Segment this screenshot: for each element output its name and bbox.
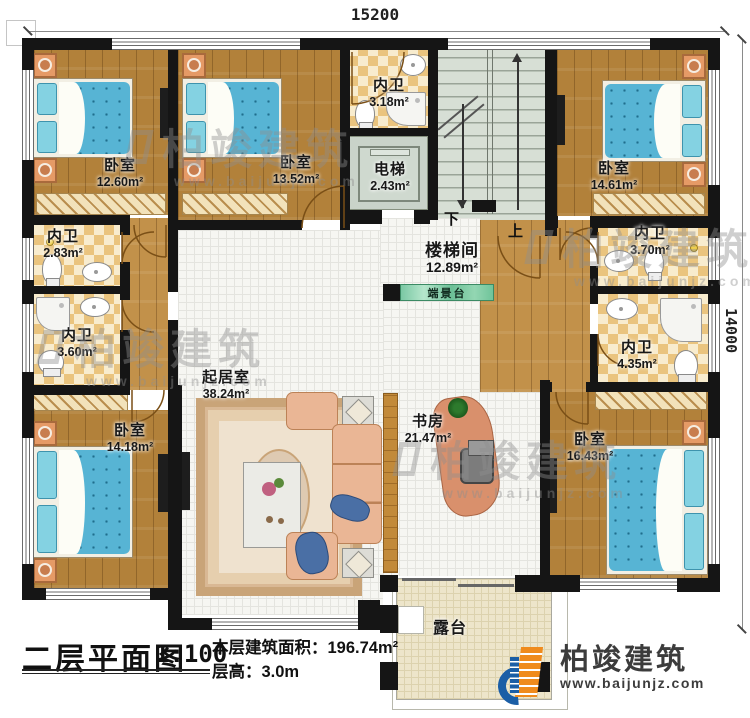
wall <box>348 128 430 136</box>
room-label-study: 书房21.47m² <box>383 414 473 445</box>
room-label-bath-r2: 内卫4.35m² <box>592 340 682 371</box>
wall <box>472 200 496 212</box>
stair-up-label: 上 <box>508 220 523 241</box>
wall <box>708 38 720 70</box>
wall <box>540 380 550 588</box>
company-name: 柏竣建筑 <box>560 645 705 675</box>
view-platform-label: 端景台 <box>428 285 467 301</box>
stair-rail <box>487 50 493 214</box>
tv-icon <box>550 458 557 513</box>
wall <box>380 605 398 633</box>
wall <box>414 210 430 224</box>
wall <box>22 215 130 225</box>
tv-icon <box>557 95 565 145</box>
wall <box>545 38 557 236</box>
company-logo: 柏竣建筑 www.baijunjz.com <box>498 645 705 709</box>
wall <box>586 382 708 392</box>
nightstand <box>33 53 57 78</box>
wall <box>708 372 720 438</box>
room-label-elevator: 电梯2.43m² <box>345 162 435 193</box>
floor-height-text: 层高：3.0m <box>212 658 299 682</box>
title-underline <box>22 673 210 674</box>
wall <box>380 575 398 592</box>
wall <box>22 38 34 70</box>
nightstand <box>182 158 206 183</box>
nightstand <box>682 420 706 445</box>
title-underline <box>22 669 210 671</box>
stair-arrow-up <box>517 62 519 210</box>
window <box>112 38 300 50</box>
sliding-door-icon <box>402 578 456 581</box>
window <box>708 438 720 564</box>
room-label-bedroom-bl: 卧室14.18m² <box>80 423 180 454</box>
room-label-bath-r1: 内卫3.70m² <box>605 226 695 257</box>
company-url: www.baijunjz.com <box>560 675 705 691</box>
decor-dot <box>266 516 273 523</box>
flower-decor <box>274 478 284 488</box>
tv-icon <box>160 88 168 138</box>
dimension-top: 15200 <box>330 5 420 24</box>
wall <box>300 38 448 50</box>
room-label-terrace: 露台 <box>400 620 500 638</box>
stair-down-label: 下 <box>444 208 459 229</box>
wardrobe <box>32 393 128 411</box>
building-area-text: 本层建筑面积：196.74m² <box>212 634 398 658</box>
arrowhead-icon <box>512 53 522 62</box>
wardrobe <box>595 390 707 410</box>
window <box>46 588 150 600</box>
room-label-bedroom-tr: 卧室14.61m² <box>564 161 664 192</box>
wall <box>168 385 182 630</box>
room-label-bath-l1: 内卫2.83m² <box>18 229 108 260</box>
wall <box>22 372 34 438</box>
view-platform: 端景台 <box>400 284 494 301</box>
room-label-bath-l2: 内卫3.60m² <box>32 328 122 359</box>
wall <box>590 228 598 238</box>
wall <box>22 385 130 395</box>
nightstand <box>682 54 706 79</box>
wall <box>182 618 212 630</box>
sink-icon <box>400 54 426 76</box>
wall <box>708 185 720 238</box>
room-label-bedroom-tl: 卧室12.60m² <box>70 158 170 189</box>
nightstand <box>33 421 57 446</box>
wall <box>22 38 112 50</box>
window <box>22 70 34 160</box>
wall <box>548 382 552 392</box>
tv-icon <box>182 452 190 510</box>
room-label-stairwell: 楼梯间12.89m² <box>392 241 512 276</box>
window <box>580 578 677 592</box>
window <box>448 38 650 50</box>
bed <box>33 446 133 558</box>
tv-icon <box>158 454 168 512</box>
wardrobe <box>182 193 288 215</box>
dimension-line-top <box>28 31 727 32</box>
wall <box>348 210 382 224</box>
sofa <box>332 424 382 544</box>
hall-center-floor <box>383 301 480 392</box>
window <box>22 438 34 564</box>
wardrobe <box>593 193 705 215</box>
nightstand <box>33 158 57 183</box>
wall <box>383 284 400 301</box>
wall <box>677 578 720 592</box>
window <box>708 238 720 280</box>
dimension-right: 14000 <box>722 308 740 353</box>
side-table <box>342 396 374 426</box>
sink-icon <box>606 298 638 320</box>
room-label-bedroom-br: 卧室16.43m² <box>540 432 640 463</box>
wall <box>168 38 178 225</box>
wall <box>545 216 558 228</box>
nightstand <box>33 558 57 583</box>
side-table <box>342 548 374 578</box>
bed <box>606 445 708 575</box>
wall <box>598 286 708 294</box>
bed <box>182 78 282 158</box>
bed <box>602 80 706 162</box>
wall <box>590 266 598 304</box>
stair-arrow-down <box>462 104 464 208</box>
decor-dot <box>278 518 284 524</box>
room-label-bedroom-tm: 卧室13.52m² <box>246 155 346 186</box>
wall <box>708 280 720 304</box>
nightstand <box>182 53 206 78</box>
room-label-living: 起居室38.24m² <box>176 370 276 401</box>
shower-icon <box>660 298 702 342</box>
window <box>708 70 720 185</box>
sink-icon <box>80 297 110 317</box>
wall <box>380 662 398 690</box>
shower-icon <box>36 297 70 331</box>
nightstand <box>682 162 706 187</box>
wall <box>358 600 380 630</box>
floor-plan-canvas: 15200 14000 <box>0 0 750 718</box>
sliding-door-icon <box>458 584 514 587</box>
logo-building-icon <box>515 647 543 697</box>
window <box>708 304 720 372</box>
wall <box>178 220 302 230</box>
armchair <box>286 392 338 430</box>
company-logo-icon <box>498 645 552 709</box>
wall <box>120 225 130 235</box>
logo-column-icon <box>510 657 519 693</box>
wall <box>168 215 178 292</box>
wardrobe <box>36 193 166 215</box>
window <box>212 618 358 630</box>
sink-icon <box>82 262 112 282</box>
wall <box>22 160 34 238</box>
bed <box>33 78 133 158</box>
wall <box>120 262 130 300</box>
wall <box>22 286 120 294</box>
elevator-door-icon <box>370 149 410 156</box>
room-label-bath-tm: 内卫3.18m² <box>344 78 434 109</box>
wall <box>150 588 168 600</box>
dimension-line-right <box>742 40 743 630</box>
wall <box>22 588 46 600</box>
